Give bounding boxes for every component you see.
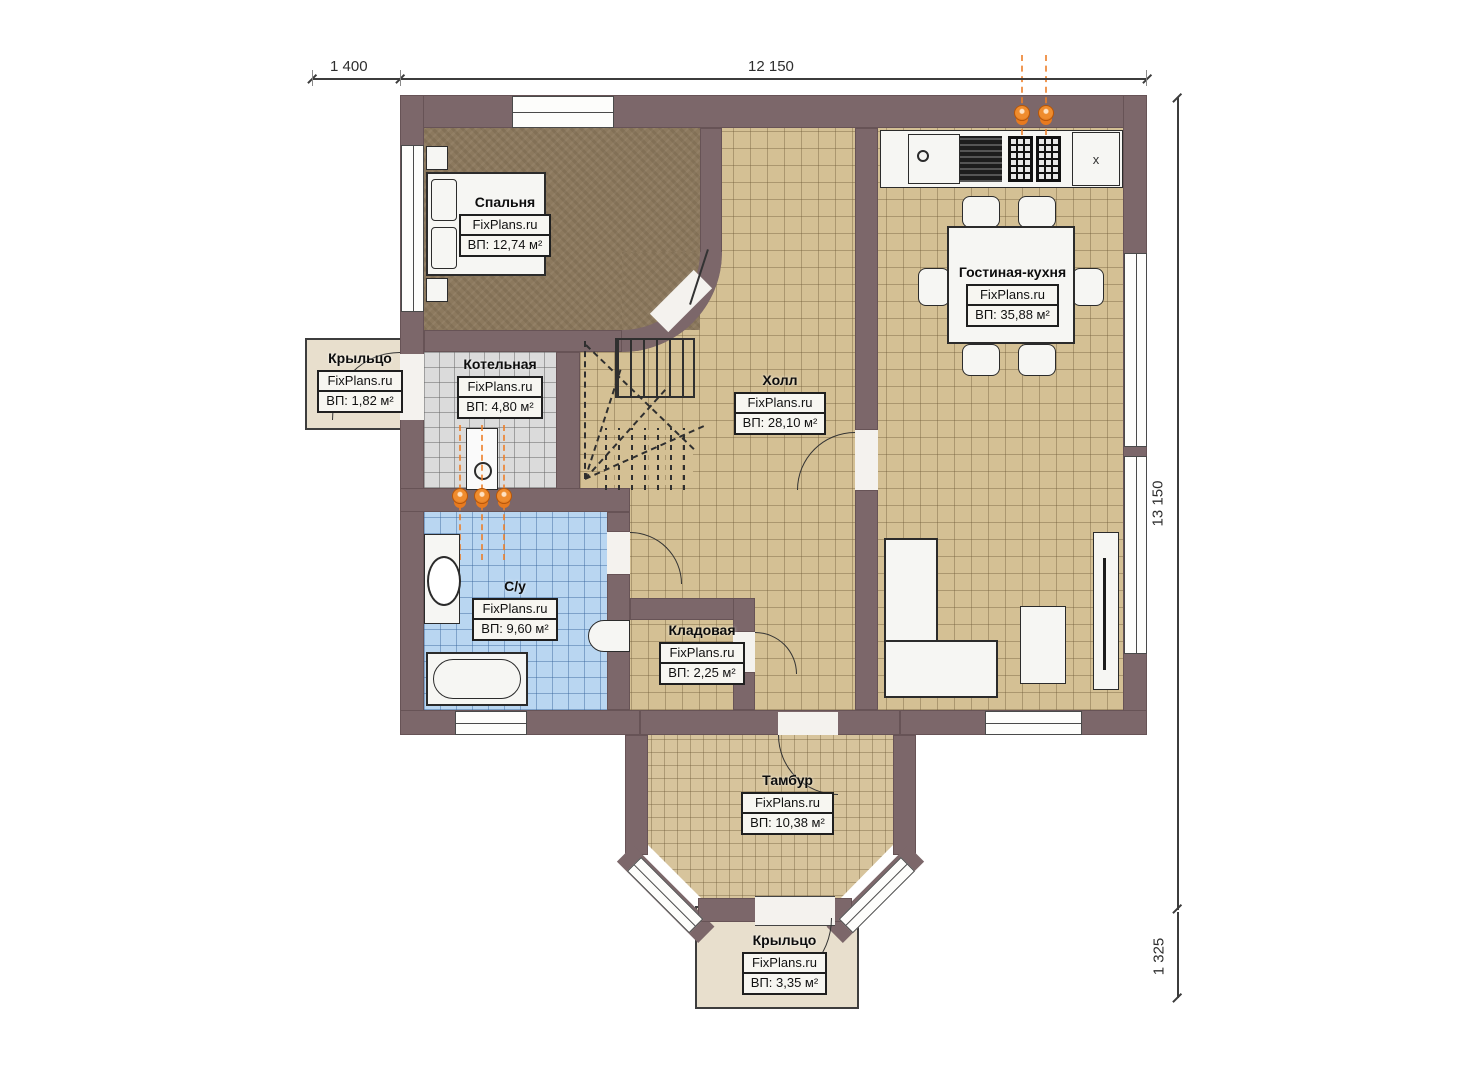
stairs-winder-line: [584, 341, 586, 479]
dimension-line-right: [1177, 97, 1179, 910]
room-label-porch-left: Крыльцо FixPlans.ru ВП: 1,82 м²: [310, 350, 410, 413]
gas-line: [1045, 55, 1047, 135]
room-name: Тамбур: [735, 772, 840, 790]
room-area: ВП: 35,88 м²: [968, 306, 1057, 325]
boiler-dial: [474, 462, 492, 480]
gas-riser-icon: [1014, 105, 1030, 121]
room-area: ВП: 28,10 м²: [736, 414, 825, 433]
dim-extension: [312, 70, 313, 86]
dimension-line-right-bottom: [1177, 912, 1179, 998]
bathroom-door-opening: [607, 532, 630, 574]
brand-watermark: FixPlans.ru: [461, 216, 550, 237]
room-area: ВП: 3,35 м²: [744, 974, 825, 993]
brand-watermark: FixPlans.ru: [661, 644, 742, 665]
bathtub-inner: [433, 659, 521, 699]
room-name: Спальня: [430, 194, 580, 212]
hall-living-wall-upper: [855, 128, 878, 430]
stairs-upper-flight: [615, 338, 695, 398]
sofa-seat: [884, 640, 998, 698]
toilet: [588, 620, 630, 652]
bedroom-wall-right: [700, 128, 722, 254]
vestibule-door-opening: [778, 712, 838, 735]
brand-watermark: FixPlans.ru: [474, 600, 555, 621]
gas-riser-icon: [474, 488, 490, 504]
room-area: ВП: 12,74 м²: [461, 236, 550, 255]
room-area: ВП: 9,60 м²: [474, 620, 555, 639]
dimension-top-main: 12 150: [748, 58, 794, 75]
room-label-boiler: Котельная FixPlans.ru ВП: 4,80 м²: [445, 356, 555, 419]
room-label-vestibule: Тамбур FixPlans.ru ВП: 10,38 м²: [735, 772, 840, 835]
bedroom-wall-bottom: [424, 330, 622, 352]
stove-burners-right: [1036, 136, 1061, 182]
bathroom-window-bottom: [455, 711, 527, 735]
room-label-bathroom: С/у FixPlans.ru ВП: 9,60 м²: [460, 578, 570, 641]
boiler-wall-right: [556, 352, 580, 490]
room-area: ВП: 4,80 м²: [459, 398, 540, 417]
room-name: Кладовая: [652, 622, 752, 640]
room-label-porch-bottom: Крыльцо FixPlans.ru ВП: 3,35 м²: [732, 932, 837, 995]
brand-watermark: FixPlans.ru: [319, 372, 400, 393]
room-label-storage: Кладовая FixPlans.ru ВП: 2,25 м²: [652, 622, 752, 685]
room-name: Гостиная-кухня: [945, 264, 1080, 282]
kitchen-faucet: [917, 150, 929, 162]
brand-watermark: FixPlans.ru: [736, 394, 825, 415]
chair: [1018, 196, 1056, 228]
tv-stand: [1093, 532, 1119, 690]
room-name: Холл: [725, 372, 835, 390]
tv: [1103, 558, 1106, 670]
brand-watermark: FixPlans.ru: [743, 794, 832, 815]
kitchen-drainer: [960, 136, 1002, 182]
room-label-bedroom: Спальня FixPlans.ru ВП: 12,74 м²: [430, 194, 580, 257]
living-door-opening: [855, 430, 878, 490]
nightstand-top: [426, 146, 448, 170]
dim-extension: [400, 70, 401, 86]
fridge-symbol: x: [1093, 152, 1100, 167]
bedroom-window-top: [512, 96, 614, 128]
dimension-top-left: 1 400: [330, 58, 368, 75]
bedroom-window-left: [401, 145, 424, 312]
bathroom-wall-top: [400, 488, 630, 512]
gas-riser-icon: [1038, 105, 1054, 121]
coffee-table: [1020, 606, 1066, 684]
wall-bottom-middle: [640, 710, 900, 735]
room-name: Крыльцо: [732, 932, 837, 950]
room-area: ВП: 10,38 м²: [743, 814, 832, 833]
gas-riser-icon: [452, 488, 468, 504]
dimension-line-top: [312, 78, 1147, 80]
bathroom-sink: [427, 556, 461, 606]
room-name: Крыльцо: [310, 350, 410, 368]
room-label-hall: Холл FixPlans.ru ВП: 28,10 м²: [725, 372, 835, 435]
room-label-living-kitchen: Гостиная-кухня FixPlans.ru ВП: 35,88 м²: [945, 264, 1080, 327]
hall-living-wall-lower: [855, 490, 878, 710]
chair: [1018, 344, 1056, 376]
gas-riser-icon: [496, 488, 512, 504]
nightstand-bottom: [426, 278, 448, 302]
living-window-right-lower: [1124, 456, 1147, 654]
room-name: Котельная: [445, 356, 555, 374]
vestibule-wall-right: [893, 735, 916, 855]
living-window-bottom: [985, 711, 1082, 735]
dimension-right-main: 13 150: [1149, 481, 1166, 527]
bathroom-wall-right-upper: [607, 512, 630, 532]
chair: [962, 196, 1000, 228]
room-area: ВП: 1,82 м²: [319, 392, 400, 411]
brand-watermark: FixPlans.ru: [968, 286, 1057, 307]
dimension-right-bottom: 1 325: [1150, 938, 1167, 976]
fridge: x: [1072, 132, 1120, 186]
floor-plan: x Спальня FixPlans.ru ВП: 12,74 м² Крыль…: [0, 0, 1473, 1080]
kitchen-sink-unit: [908, 134, 960, 184]
brand-watermark: FixPlans.ru: [459, 378, 540, 399]
living-window-right-upper: [1124, 253, 1147, 447]
brand-watermark: FixPlans.ru: [744, 954, 825, 975]
room-area: ВП: 2,25 м²: [661, 664, 742, 683]
gas-line: [1021, 55, 1023, 135]
stove-burners-left: [1008, 136, 1033, 182]
room-name: С/у: [460, 578, 570, 596]
vestibule-wall-left: [625, 735, 648, 855]
dim-extension: [1146, 70, 1147, 86]
chair: [962, 344, 1000, 376]
